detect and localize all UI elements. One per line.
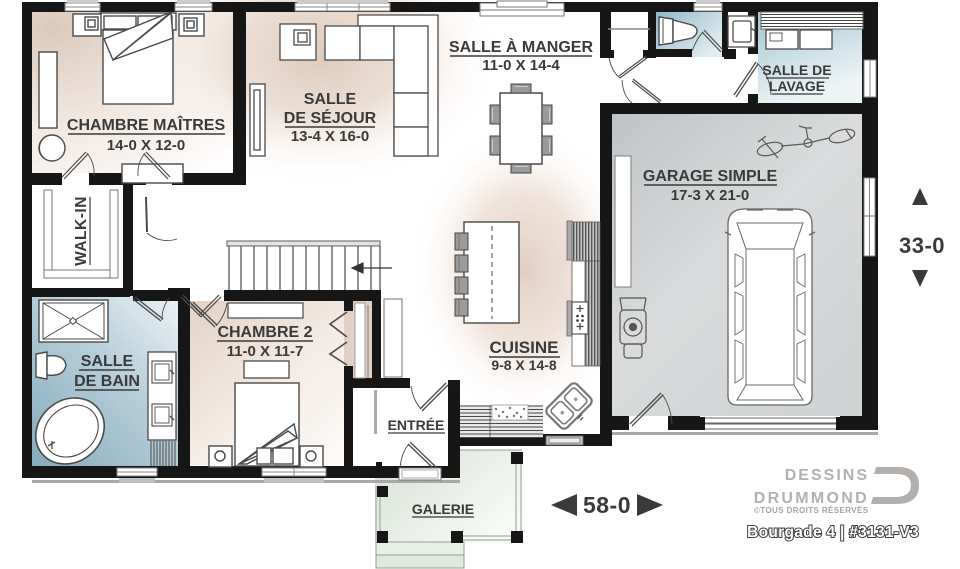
- svg-text:CHAMBRE 2: CHAMBRE 2: [217, 324, 312, 341]
- svg-text:11-0 X 11-7: 11-0 X 11-7: [227, 343, 304, 360]
- svg-text:13-4 X 16-0: 13-4 X 16-0: [291, 128, 369, 145]
- svg-text:CHAMBRE MAÎTRES: CHAMBRE MAÎTRES: [67, 115, 226, 134]
- svg-text:GALERIE: GALERIE: [412, 501, 474, 517]
- svg-text:DESSINS: DESSINS: [785, 467, 869, 484]
- svg-text:SALLE: SALLE: [81, 353, 134, 370]
- svg-text:ENTRÉE: ENTRÉE: [388, 417, 445, 433]
- svg-text:LAVAGE: LAVAGE: [769, 78, 825, 94]
- svg-text:SALLE DE: SALLE DE: [762, 62, 831, 78]
- svg-text:17-3 X 21-0: 17-3 X 21-0: [671, 187, 749, 204]
- svg-text:©TOUS DROITS RÉSERVÉS: ©TOUS DROITS RÉSERVÉS: [754, 506, 869, 515]
- svg-text:GARAGE SIMPLE: GARAGE SIMPLE: [643, 168, 778, 185]
- svg-text:14-0 X 12-0: 14-0 X 12-0: [107, 137, 185, 154]
- svg-text:SALLE À MANGER: SALLE À MANGER: [449, 37, 593, 56]
- svg-text:DE SÉJOUR: DE SÉJOUR: [284, 108, 377, 127]
- svg-text:CUISINE: CUISINE: [490, 338, 559, 357]
- svg-text:11-0 X 14-4: 11-0 X 14-4: [482, 57, 560, 74]
- svg-text:DRUMMOND: DRUMMOND: [754, 490, 869, 507]
- svg-text:WALK-IN: WALK-IN: [73, 196, 90, 266]
- svg-text:DE BAIN: DE BAIN: [74, 373, 140, 390]
- svg-text:58-0: 58-0: [583, 492, 631, 518]
- svg-text:33-0: 33-0: [899, 233, 945, 258]
- svg-text:SALLE: SALLE: [304, 91, 357, 108]
- svg-text:Bourgade 4 | #3131-V3: Bourgade 4 | #3131-V3: [747, 524, 919, 541]
- svg-text:9-8 X 14-8: 9-8 X 14-8: [491, 357, 557, 373]
